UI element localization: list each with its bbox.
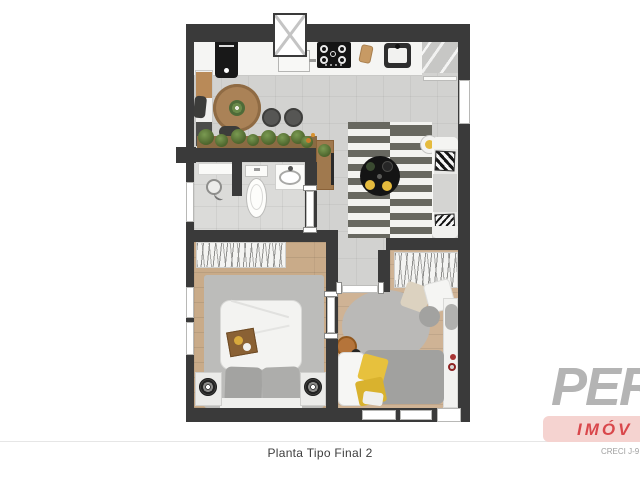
window [459,80,470,124]
window [186,182,194,222]
white-pillow [362,391,384,407]
bath-shelf [198,163,233,175]
plant-icon [231,129,246,144]
window [362,410,396,420]
cabinet-wood-section [196,72,212,98]
bedroom-door-frame [324,333,338,339]
table-plant [366,162,375,171]
vanity-faucet-icon [288,166,293,171]
drawer-handle [309,59,316,62]
seat-cushion [445,304,458,330]
wall-kitchen-bench [186,148,316,162]
bar-stool [262,108,281,127]
faucet-icon [395,44,400,49]
yellow-plate [365,180,375,190]
speaker-icon [199,378,217,396]
console-plant-icon [318,144,331,157]
sofa-throw [433,174,457,212]
burner-icon [338,56,346,64]
burner-icon [320,45,328,53]
wall-left [186,24,194,422]
bedroom-closet [196,242,286,268]
fridge-knob [224,68,229,73]
toilet-bowl-inner [250,184,263,210]
tray-plate [234,336,243,345]
plant-icon [215,134,228,147]
sink-basin [388,48,407,63]
fridge-handle [219,45,234,47]
shower-divider-wall [232,162,242,196]
utility-shaft [273,13,307,57]
bed-foot-edge [220,398,302,408]
multiroom-door-frame [378,282,384,294]
table-bowl [382,161,393,172]
corner-glass-door [437,408,461,422]
decor-dot [448,363,456,371]
bar-stool [284,108,303,127]
wall-living-south [386,238,470,250]
tray-plate [243,343,251,351]
bath-door-frame [303,227,317,233]
logo-brand-text: PER [551,356,640,418]
sofa-pillow-checker [434,150,455,171]
vanity-sink [279,170,301,185]
flower-icon [306,138,311,143]
burner-icon [330,51,336,57]
plant-icon [198,129,214,145]
window [400,410,432,420]
speaker-icon [304,378,322,396]
cooktop-knobs [325,64,343,66]
table-centerpiece-plant [229,100,245,116]
bedroom-door-leaf [327,297,335,333]
yellow-plate [382,181,392,191]
sofa-armrest [432,226,458,238]
burner-icon [338,45,346,53]
logo-division-text: IMÓV [577,420,632,440]
logo-creci-text: CRECI J-9 [601,447,639,456]
plan-caption: Planta Tipo Final 2 [0,446,640,460]
toilet-button [254,168,260,171]
toilet-tank [245,165,268,177]
separator-line [0,441,640,442]
floor-plan-page: Planta Tipo Final 2 PER IMÓV CRECI J-9 [0,0,640,480]
flower-icon [311,133,315,137]
window [186,322,194,355]
plant-icon [247,134,259,146]
counter-ledge [423,76,457,81]
floor-plan [0,0,640,480]
wall-top [186,24,470,42]
dining-chair [193,95,207,118]
window [186,287,194,318]
multiroom-door-leaf [342,285,378,293]
glass-panel-counter [422,42,458,73]
burner-icon [320,56,328,64]
pouf [419,306,440,327]
plant-icon [277,133,290,146]
tv-screen [331,153,334,185]
decor-dot [450,354,456,360]
shaft-x-icon [275,15,305,55]
table-item [377,174,382,179]
wall-protrusion [176,147,196,163]
plant-icon [261,130,276,145]
sofa-armrest [432,137,458,149]
bath-door-leaf [306,191,314,227]
